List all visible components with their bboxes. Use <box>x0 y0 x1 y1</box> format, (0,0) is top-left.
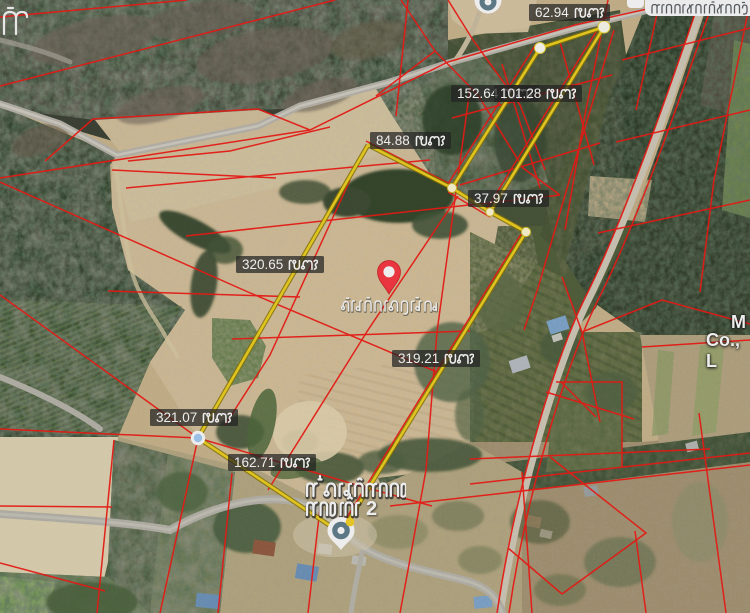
svg-text:2: 2 <box>366 498 377 519</box>
